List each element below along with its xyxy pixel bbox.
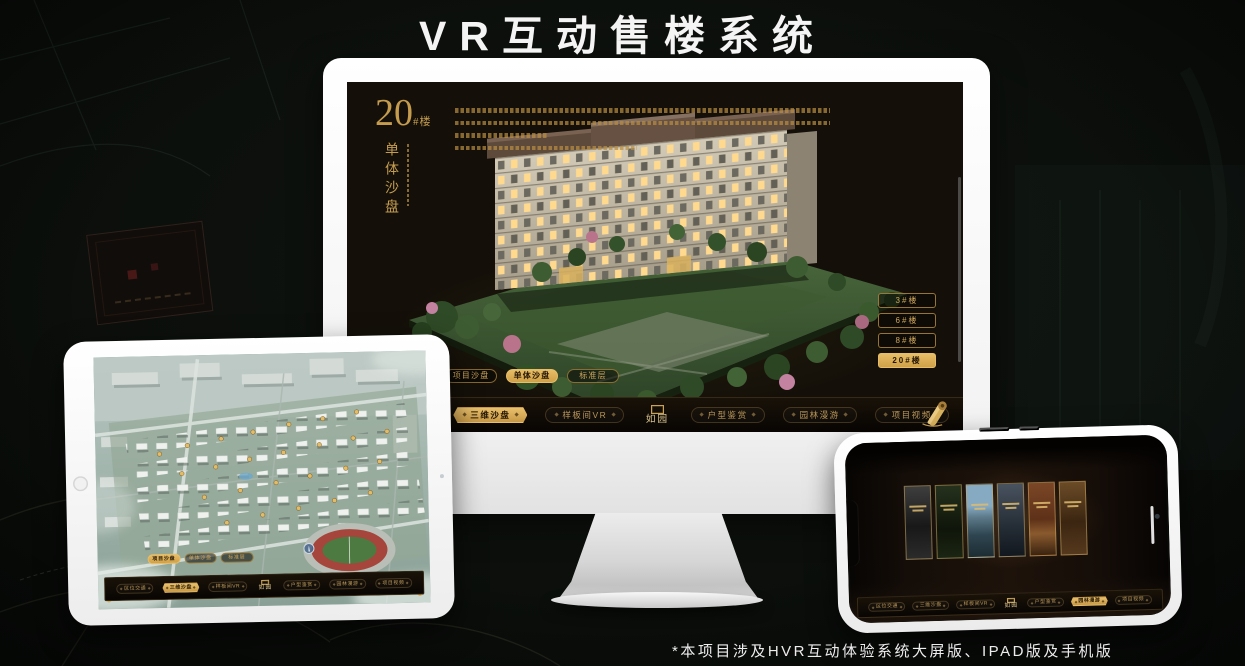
- menu-item-project-video[interactable]: 项目视频: [375, 578, 412, 589]
- phone-power-button[interactable]: [1019, 426, 1039, 431]
- menu-item-showroom-vr[interactable]: 样板间VR: [956, 599, 995, 610]
- tab-standard-floor[interactable]: 标准层: [221, 552, 254, 562]
- menu-item-3d-sandbox[interactable]: 三维沙盘: [912, 600, 949, 611]
- phone-camera-dot: [1155, 514, 1160, 519]
- phone-notch: [846, 500, 859, 566]
- menu-item-showroom-vr[interactable]: 样板间VR: [545, 407, 624, 424]
- phone-screen: 区位交通 三维沙盘 样板间VR 如园 户型鉴赏 园林漫游 项目视频: [845, 435, 1172, 624]
- building-button-8[interactable]: 8#楼: [878, 333, 936, 348]
- brand-seal-icon: [651, 405, 664, 414]
- scroll-handle-icon[interactable]: [919, 399, 955, 430]
- card-caption: [1002, 502, 1020, 508]
- headline-building-number: 20#楼: [375, 94, 432, 132]
- building-selector: 3#楼 6#楼 8#楼 20#楼: [878, 293, 936, 368]
- menu-item-location-traffic[interactable]: 区位交通: [868, 602, 905, 613]
- scene-card-autumn-garden[interactable]: [1028, 482, 1057, 557]
- brand-logo: 如园: [646, 405, 669, 425]
- menu-item-floorplan-gallery[interactable]: 户型鉴赏: [283, 580, 320, 591]
- scene-card-exterior-day[interactable]: [966, 483, 995, 558]
- building-button-20[interactable]: 20#楼: [878, 353, 936, 368]
- tab-single-sandbox[interactable]: 单体沙盘: [184, 553, 217, 563]
- card-caption: [909, 505, 927, 511]
- phone-menubar: 区位交通 三维沙盘 样板间VR 如园 户型鉴赏 园林漫游 项目视频: [857, 589, 1163, 619]
- brand-logo-text: 如园: [646, 415, 669, 425]
- scene-gallery: [904, 481, 1088, 560]
- phone-device: 区位交通 三维沙盘 样板间VR 如园 户型鉴赏 园林漫游 项目视频: [833, 424, 1182, 634]
- monitor-stand: [557, 513, 760, 601]
- menu-item-3d-sandbox[interactable]: 三维沙盘: [162, 582, 199, 593]
- menu-item-garden-roam[interactable]: 园林漫游: [783, 407, 857, 424]
- headline-subtitle-vertical: 单体沙盘: [380, 142, 400, 218]
- footnote-text: *本项目涉及HVR互动体验系统大屏版、IPAD版及手机版: [672, 640, 1113, 661]
- brand-logo: 如园: [1004, 597, 1018, 609]
- menu-item-garden-roam[interactable]: 园林漫游: [1071, 596, 1108, 607]
- phone-volume-button[interactable]: [979, 427, 1009, 432]
- tablet-screen: 项目沙盘 单体沙盘 标准层 区位交通 三维沙盘 样板间VR 如园 户型鉴赏 园林…: [93, 350, 430, 609]
- scene-card-interior[interactable]: [1059, 481, 1088, 556]
- menu-item-floorplan-gallery[interactable]: 户型鉴赏: [1027, 597, 1064, 608]
- menu-item-showroom-vr[interactable]: 样板间VR: [208, 581, 247, 592]
- tablet-camera-dot: [440, 474, 444, 478]
- menu-item-project-video[interactable]: 项目视频: [1115, 595, 1152, 606]
- tablet-device: 项目沙盘 单体沙盘 标准层 区位交通 三维沙盘 样板间VR 如园 户型鉴赏 园林…: [63, 334, 455, 626]
- home-indicator[interactable]: [1150, 506, 1154, 544]
- headline-subtitle-english-decor: [407, 144, 409, 206]
- background-sign: [87, 221, 213, 324]
- tab-project-sandbox[interactable]: 项目沙盘: [148, 554, 181, 564]
- menu-item-3d-sandbox[interactable]: 三维沙盘: [453, 407, 527, 424]
- scene-card-entrance[interactable]: [904, 485, 933, 560]
- brand-logo: 如园: [258, 580, 272, 592]
- tab-single-sandbox[interactable]: 单体沙盘: [506, 369, 558, 383]
- card-caption: [1064, 501, 1082, 507]
- menu-item-garden-roam[interactable]: 园林漫游: [329, 579, 366, 590]
- brand-logo-text: 如园: [1004, 603, 1018, 609]
- page-title: VR互动售楼系统: [0, 2, 1245, 62]
- monitor-foot: [551, 592, 763, 608]
- tab-standard-floor[interactable]: 标准层: [567, 369, 619, 383]
- menu-item-location-traffic[interactable]: 区位交通: [117, 583, 154, 594]
- scene-card-building-night[interactable]: [997, 483, 1026, 558]
- building-button-6[interactable]: 6#楼: [878, 313, 936, 328]
- tab-project-sandbox[interactable]: 项目沙盘: [445, 369, 497, 383]
- card-caption: [971, 503, 989, 509]
- description-text-lines: [455, 108, 830, 158]
- poster-stage: VR互动售楼系统: [0, 0, 1245, 666]
- screen-scrollbar[interactable]: [958, 177, 961, 362]
- building-button-3[interactable]: 3#楼: [878, 293, 936, 308]
- monitor-view-tabs: 项目沙盘 单体沙盘 标准层: [445, 369, 619, 383]
- card-caption: [940, 504, 958, 510]
- card-caption: [1033, 502, 1051, 508]
- brand-logo-text: 如园: [259, 586, 273, 592]
- menu-item-floorplan-gallery[interactable]: 户型鉴赏: [691, 407, 765, 424]
- scene-card-courtyard[interactable]: [935, 484, 964, 559]
